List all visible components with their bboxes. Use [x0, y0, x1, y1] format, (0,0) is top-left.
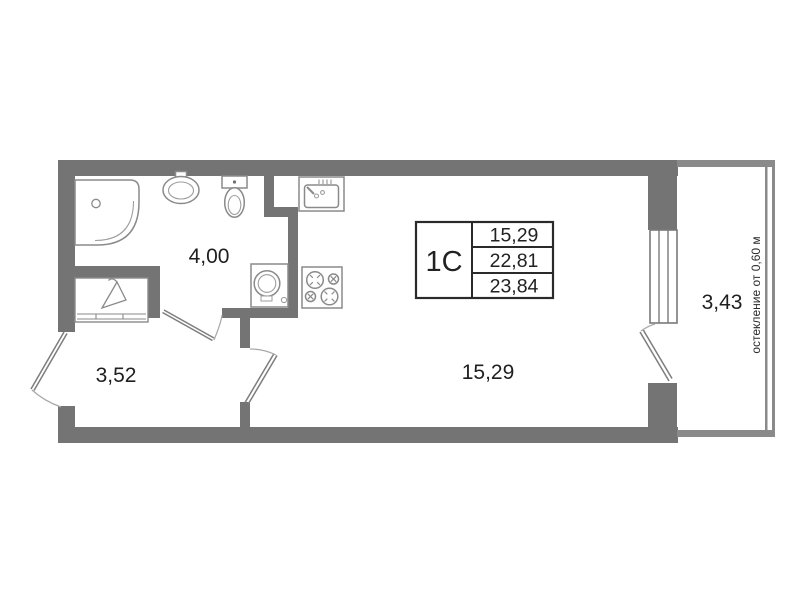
wall-hall-northeast-stub — [240, 308, 250, 348]
unit-info-table: 1С 15,29 22,81 23,84 — [416, 222, 553, 298]
balcony-door-swing-arc — [641, 324, 655, 331]
shower-icon — [75, 180, 139, 245]
kitchen-sink-icon — [299, 177, 344, 211]
wall-pier-window-top — [648, 160, 677, 230]
entrance-door-leaf — [31, 332, 64, 389]
wardrobe — [75, 278, 148, 322]
entrance-door-leaf2 — [34, 334, 67, 391]
entrance-door-swing-arc — [32, 390, 61, 407]
wall-bathroom-southwest — [58, 266, 152, 278]
hallway-area-label: 3,52 — [96, 364, 137, 387]
wall-top — [58, 160, 678, 176]
bathroom-door-leaf2 — [163, 313, 213, 341]
floor-plan-svg: 1С 15,29 22,81 23,84 4,00 3,52 15,29 3,4… — [0, 0, 799, 600]
bathroom-door-swing-arc — [214, 315, 222, 340]
unit-type-label: 1С — [425, 246, 462, 278]
walls — [58, 160, 678, 443]
glazing-note-label: остекление от 0,60 м — [749, 236, 763, 353]
balcony-glazing-line-inner — [765, 160, 768, 437]
wall-left-lower-stub — [58, 406, 75, 427]
wall-hall-door-post — [240, 402, 250, 427]
area-row-total: 22,81 — [490, 250, 539, 272]
area-row-living: 15,29 — [490, 225, 539, 247]
balcony-glazing-line-outer — [772, 160, 775, 437]
wall-pier-window-bottom — [648, 383, 677, 443]
bathroom-area-label: 4,00 — [189, 245, 230, 268]
living-room-door-leaf2 — [248, 356, 277, 405]
washbasin-icon — [163, 172, 199, 204]
balcony-area-label: 3,43 — [702, 291, 743, 314]
living-room-area-label: 15,29 — [462, 361, 515, 384]
wall-bathroom-door-jamb — [148, 266, 160, 318]
balcony-door-leaf — [640, 332, 669, 381]
living-room-door-leaf — [245, 354, 274, 403]
window-icon — [650, 230, 677, 323]
living-room-door-swing-arc — [250, 349, 276, 355]
wall-bathroom-east-lower — [288, 207, 298, 318]
bathroom-door-leaf — [164, 310, 214, 338]
wall-bottom — [58, 427, 678, 443]
balcony-door-leaf2 — [643, 330, 672, 379]
toilet-icon — [222, 176, 247, 217]
floor-plan-image: 1С 15,29 22,81 23,84 4,00 3,52 15,29 3,4… — [0, 0, 799, 600]
area-row-total-with-balcony: 23,84 — [490, 276, 539, 298]
stove-icon — [302, 267, 342, 308]
bathroom-door — [163, 310, 223, 341]
wall-bathroom-south-right — [222, 308, 298, 318]
balcony-wall-top — [677, 160, 775, 167]
entrance-door — [31, 332, 67, 407]
balcony-door — [640, 324, 672, 381]
washing-machine-icon — [251, 264, 288, 307]
living-room-door — [245, 349, 277, 405]
wall-left-upper — [58, 160, 75, 332]
balcony-wall-bottom — [677, 430, 775, 437]
